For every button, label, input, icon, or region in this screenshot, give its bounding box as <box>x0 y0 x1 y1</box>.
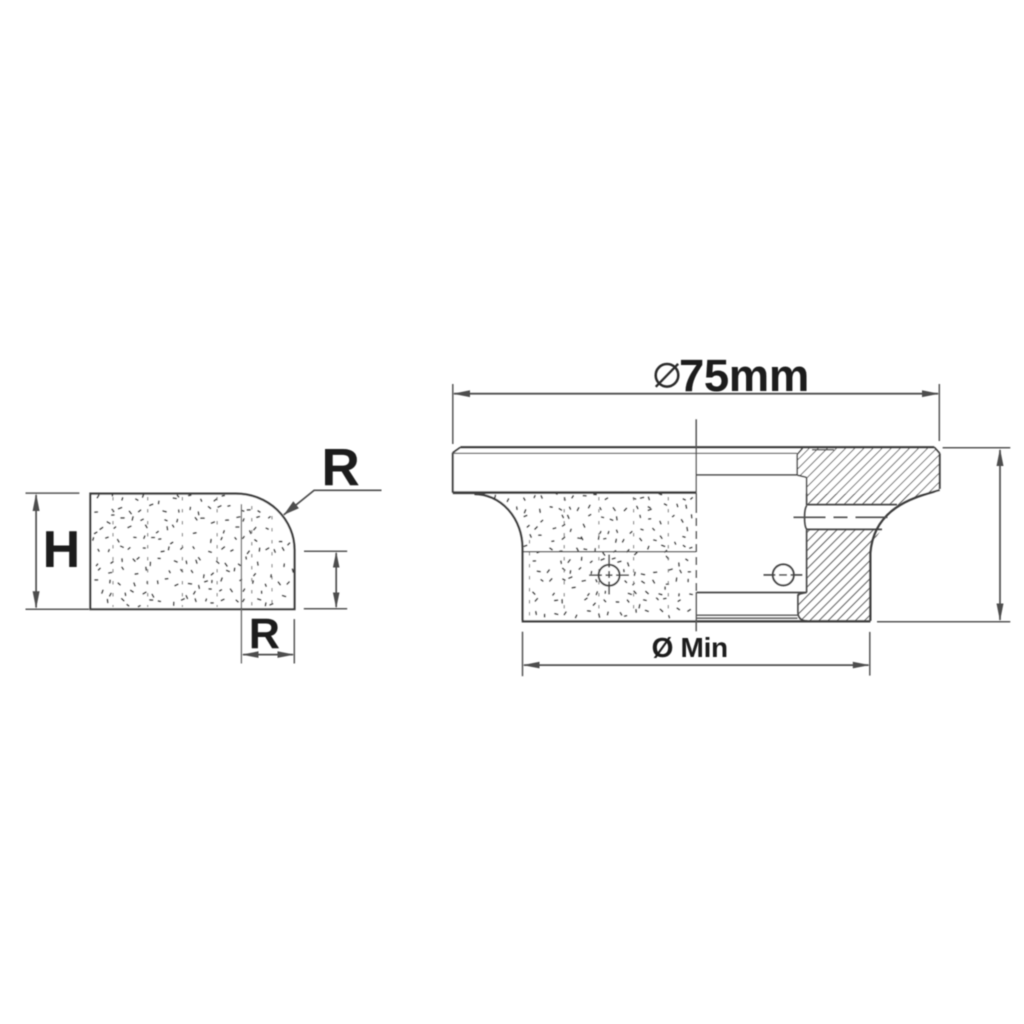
svg-text:R: R <box>322 439 360 498</box>
svg-text:Ø Min: Ø Min <box>652 632 728 663</box>
svg-text:75mm: 75mm <box>679 350 809 401</box>
svg-text:R: R <box>249 610 280 658</box>
svg-text:H: H <box>43 521 81 579</box>
